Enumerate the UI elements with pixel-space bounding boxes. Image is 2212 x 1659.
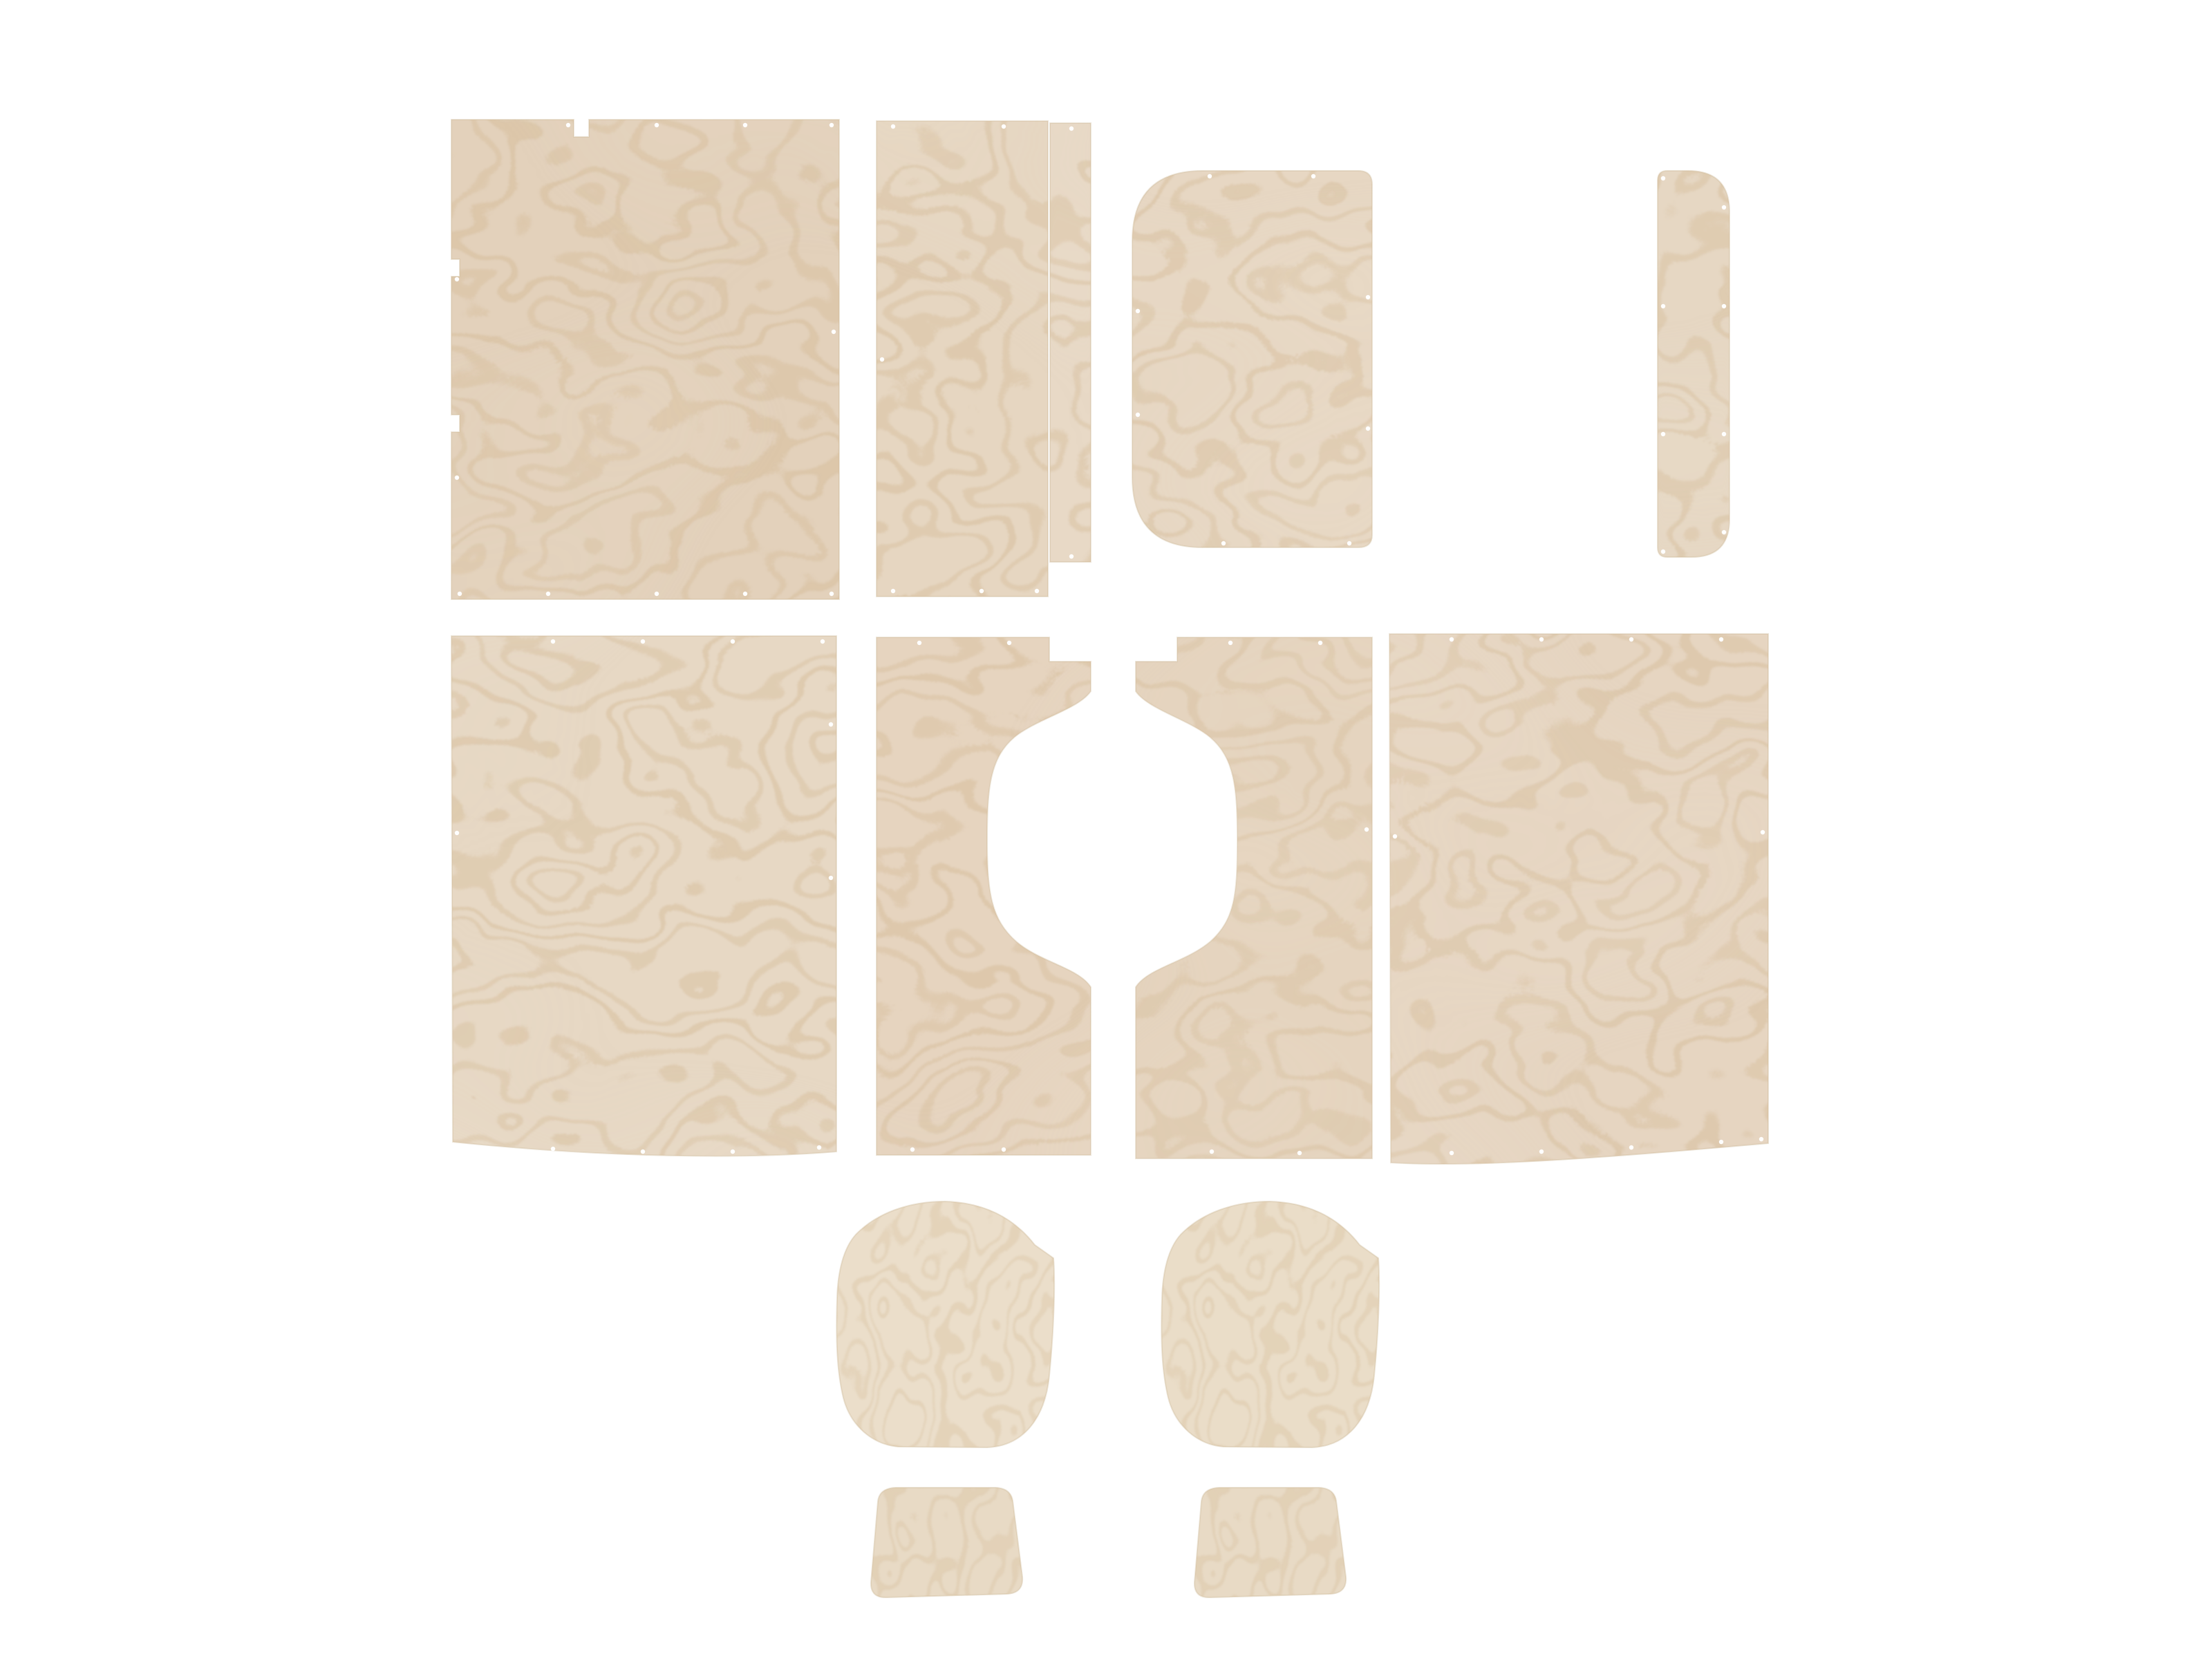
fixing-hole [1347,541,1351,545]
fixing-hole [829,592,834,596]
fixing-hole [1210,1150,1214,1154]
fixing-hole [1661,176,1665,180]
fixing-hole [1629,637,1633,641]
fixing-hole [743,123,747,127]
fixing-hole [551,1147,555,1151]
fixing-hole [1002,124,1006,129]
fixing-hole [1539,637,1544,641]
fixing-hole [1366,427,1370,431]
fixing-hole [829,722,833,727]
fixing-hole [546,592,550,596]
piece-lower-right-wall-panel [1389,634,1768,1164]
fixing-hole [1136,413,1140,417]
fixing-hole [1759,1137,1763,1141]
fixing-hole [1228,641,1232,645]
piece-lower-left-wall-panel [451,636,836,1156]
fixing-hole [1318,641,1322,645]
piece-sliding-door-panel [1132,171,1372,547]
fixing-hole [551,639,555,644]
piece-wheel-box-cover-left [836,1201,1054,1447]
fixing-hole [832,330,836,334]
piece-upper-left-wall-panel [451,120,839,599]
fixing-hole [1450,637,1454,641]
piece-shape-step-infill-right [1194,1488,1346,1597]
fixing-hole [1136,309,1140,313]
fixing-hole [1221,541,1226,545]
fixing-hole [641,639,645,644]
fixing-hole [1007,641,1011,645]
piece-shape-wheel-box-cover-left [836,1201,1054,1447]
fixing-hole [1450,1151,1454,1155]
fixing-hole [829,876,833,880]
piece-shape-upper-middle-wall-panel [877,121,1048,597]
piece-shape-upper-left-wall-panel [451,120,839,599]
plywood-kit-figure [0,0,2212,1659]
fixing-hole [821,639,825,644]
fixing-hole [1719,1140,1723,1144]
fixing-hole [455,476,459,480]
piece-wheel-box-cover-right [1161,1201,1379,1447]
fixing-hole [817,1145,821,1150]
fixing-hole [1761,830,1765,834]
fixing-hole [458,592,462,596]
fixing-hole [655,123,659,127]
piece-shape-lower-left-wall-panel [451,636,836,1156]
fixing-hole [910,1147,915,1152]
piece-arch-cutout-panel-left [877,637,1091,1155]
fixing-hole [891,124,895,129]
fixing-hole [1069,126,1074,131]
fixing-hole [1393,834,1397,838]
piece-shape-rear-pillar-strip [1658,171,1730,557]
piece-shape-arch-cutout-panel-right [1136,637,1372,1159]
fixing-hole [1719,637,1723,641]
fixing-hole [1661,432,1665,436]
fixing-hole [1208,174,1212,178]
fixing-hole [655,592,659,596]
piece-shape-step-infill-left [871,1488,1022,1597]
fixing-hole [1722,432,1726,436]
fixing-hole [1035,589,1039,593]
fixing-hole [731,1150,735,1154]
fixing-hole [641,1150,645,1154]
piece-shape-pillar-infill-strip [1050,123,1091,562]
fixing-hole [1722,530,1726,534]
pieces-layer [451,120,1768,1597]
fixing-hole [1365,827,1369,832]
fixing-hole [1002,1147,1006,1152]
fixing-hole [891,589,895,593]
fixing-hole [1629,1145,1633,1150]
piece-shape-arch-cutout-panel-left [877,637,1091,1155]
piece-step-infill-left [871,1488,1022,1597]
piece-step-infill-right [1194,1488,1346,1597]
fixing-hole [1661,550,1665,554]
page: { "meta": { "title": "Birch plywood camp… [0,0,2212,1659]
piece-shape-sliding-door-panel [1132,171,1372,547]
fixing-hole [743,592,747,596]
fixing-hole [731,639,735,644]
fixing-hole [1297,1151,1302,1155]
fixing-hole [455,277,459,281]
fixing-hole [1661,304,1665,308]
fixing-hole [1722,304,1726,308]
piece-shape-lower-right-wall-panel [1389,634,1768,1164]
fixing-hole [917,641,921,645]
fixing-hole [1069,554,1074,559]
fixing-hole [980,589,984,593]
fixing-hole [1722,205,1726,209]
fixing-hole [1366,295,1370,299]
piece-arch-cutout-panel-right [1136,637,1372,1159]
fixing-hole [1539,1150,1544,1154]
fixing-hole [829,123,834,127]
piece-shape-wheel-box-cover-right [1161,1201,1379,1447]
piece-rear-pillar-strip [1658,171,1730,557]
fixing-hole [1311,174,1315,178]
piece-pillar-infill-strip [1050,123,1091,562]
fixing-hole [880,357,884,362]
piece-upper-middle-wall-panel [877,121,1048,597]
plywood-kit-svg [0,0,2212,1659]
fixing-hole [455,831,459,835]
fixing-hole [566,123,570,127]
